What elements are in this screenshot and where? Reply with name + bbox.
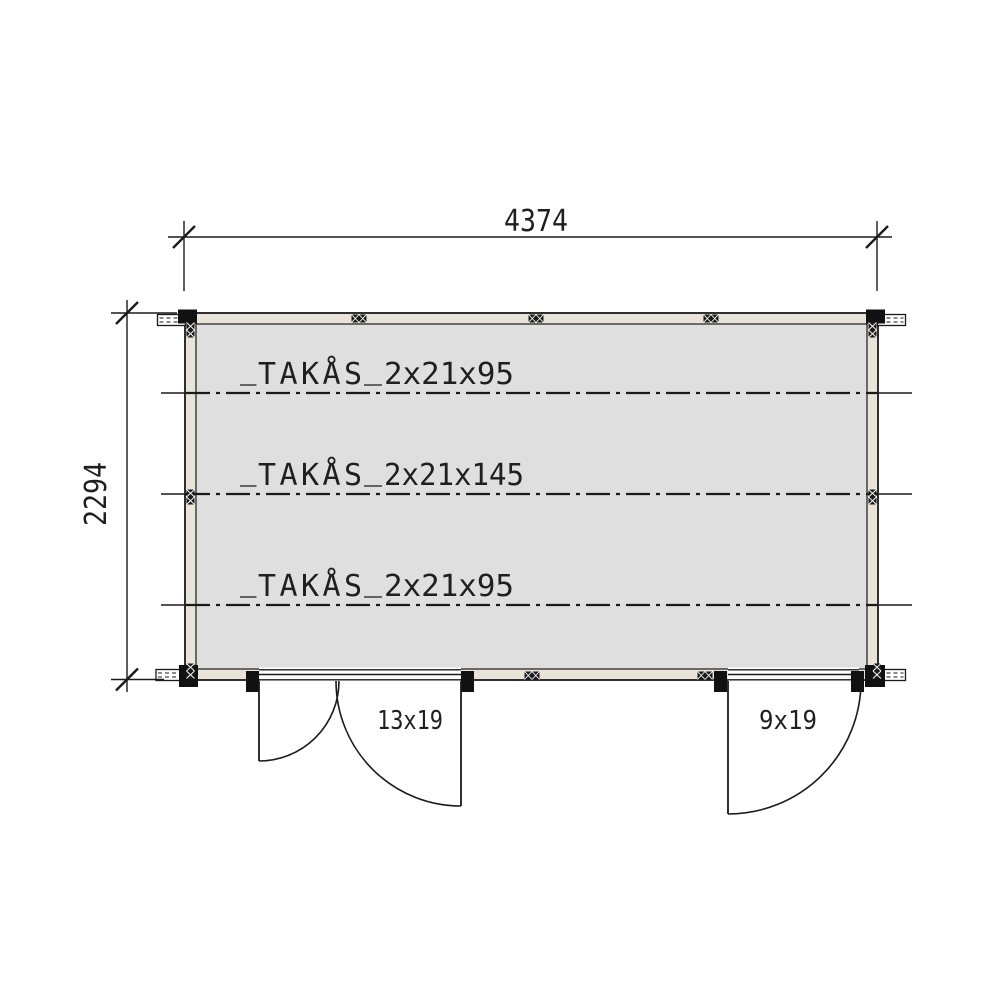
door-jamb — [461, 671, 474, 692]
door-size-label: 9x19 — [759, 706, 817, 736]
fastener-symbol — [698, 672, 713, 680]
floor-plan-drawing: TAKÅS 2x21x95 TAKÅS 2x21x145 TAKÅS 2x21x… — [0, 0, 1000, 1000]
fastener-symbol — [704, 315, 719, 323]
door-swing-arc — [728, 681, 861, 814]
fastener-symbol — [352, 315, 367, 323]
purlin3-size-label: 2x21x95 — [384, 569, 514, 604]
door-size-label: 13x19 — [377, 706, 443, 736]
door-jamb — [714, 671, 727, 692]
fastener-symbol — [187, 323, 195, 338]
door-swing-arc — [259, 681, 339, 761]
single-door-9x19: 9x19 — [714, 671, 864, 814]
fastener-symbol — [529, 315, 544, 323]
fastener-symbol — [869, 323, 877, 338]
depth-dimension-value: 2294 — [79, 462, 114, 526]
purlin2-size-label: 2x21x145 — [384, 458, 524, 493]
fastener-symbol — [525, 672, 540, 680]
width-dimension-value: 4374 — [504, 204, 568, 239]
purlin2-name-label: TAKÅS — [258, 457, 362, 493]
purlin3-name-label: TAKÅS — [258, 568, 362, 604]
door-jamb — [851, 671, 864, 692]
door-jamb — [246, 671, 259, 692]
floor-plan-canvas: TAKÅS 2x21x95 TAKÅS 2x21x145 TAKÅS 2x21x… — [0, 0, 1000, 1000]
double-door-13x19: 13x19 — [246, 671, 474, 806]
corner-post-top-right — [866, 310, 885, 324]
door-swing-arc — [336, 681, 461, 806]
fastener-symbol — [873, 664, 881, 679]
depth-dimension — [111, 300, 177, 692]
fastener-symbol — [869, 490, 877, 505]
corner-post-top-left — [178, 310, 197, 324]
purlin1-size-label: 2x21x95 — [384, 357, 514, 392]
fastener-symbol — [187, 664, 195, 679]
purlin1-name-label: TAKÅS — [258, 356, 362, 392]
fastener-symbol — [187, 490, 195, 505]
